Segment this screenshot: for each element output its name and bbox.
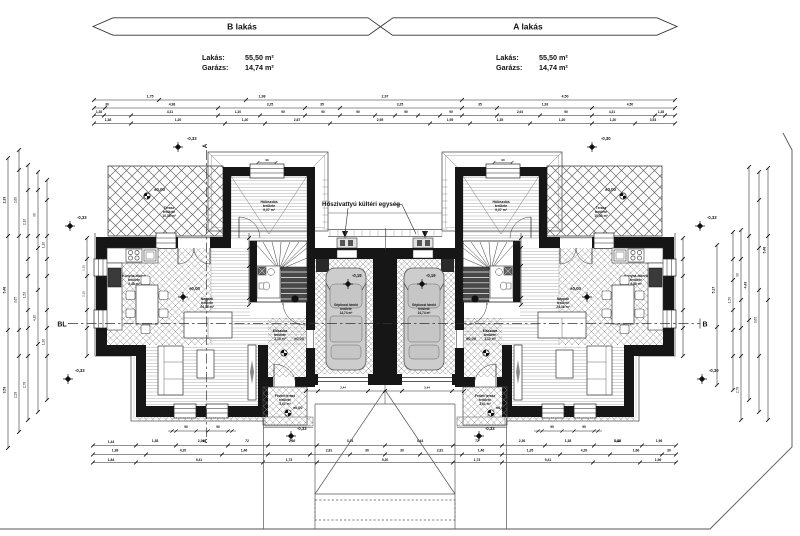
svg-text:5,17: 5,17 [712, 287, 716, 294]
svg-text:14,74 m²: 14,74 m² [340, 311, 353, 315]
svg-text:-0,30: -0,30 [709, 368, 719, 373]
svg-text:-0,33: -0,33 [297, 426, 307, 431]
svg-text:90: 90 [265, 158, 269, 162]
svg-text:5,41: 5,41 [545, 458, 552, 462]
svg-text:14,74 m²: 14,74 m² [539, 63, 568, 72]
svg-text:A: A [203, 438, 209, 443]
svg-text:1,35: 1,35 [497, 118, 504, 122]
svg-text:90: 90 [216, 425, 220, 429]
svg-text:1,38: 1,38 [658, 110, 664, 114]
svg-text:3,53: 3,53 [650, 118, 657, 122]
svg-text:2,33: 2,33 [3, 197, 7, 204]
svg-text:4,31: 4,31 [167, 110, 173, 114]
svg-text:4,20: 4,20 [180, 449, 187, 453]
svg-text:±0,00: ±0,00 [154, 187, 166, 192]
svg-text:1,98: 1,98 [259, 95, 266, 99]
svg-text:90: 90 [501, 158, 505, 162]
svg-text:BL: BL [57, 322, 67, 329]
svg-text:1,10: 1,10 [42, 242, 46, 248]
svg-text:90: 90 [281, 110, 285, 114]
svg-text:3,61 m²: 3,61 m² [279, 402, 291, 406]
svg-text:1,84: 1,84 [108, 458, 115, 462]
svg-text:24,36 m²: 24,36 m² [200, 305, 214, 309]
svg-text:1,10: 1,10 [82, 265, 86, 271]
svg-text:±0,00: ±0,00 [570, 286, 582, 291]
svg-text:1,20: 1,20 [235, 110, 241, 114]
svg-text:30: 30 [105, 103, 109, 107]
svg-text:4,98: 4,98 [169, 103, 176, 107]
svg-text:90: 90 [404, 110, 408, 114]
svg-text:B lakás: B lakás [227, 22, 257, 32]
svg-text:9,07 m²: 9,07 m² [263, 208, 276, 212]
svg-text:-0,19: -0,19 [426, 273, 436, 278]
svg-text:1,35: 1,35 [527, 449, 534, 453]
svg-text:2,95: 2,95 [377, 118, 384, 122]
svg-text:3,53: 3,53 [3, 387, 7, 394]
svg-text:±0,00: ±0,00 [496, 406, 505, 410]
svg-text:Garázs:: Garázs: [496, 63, 522, 72]
svg-text:1,75: 1,75 [147, 95, 154, 99]
svg-text:-0,19: -0,19 [352, 273, 362, 278]
svg-text:90: 90 [736, 273, 740, 277]
svg-text:-0,33: -0,33 [485, 426, 495, 431]
svg-text:B: B [702, 322, 707, 329]
svg-text:-0,33: -0,33 [75, 368, 85, 373]
svg-text:±0,00: ±0,00 [189, 286, 201, 291]
svg-text:3,44: 3,44 [424, 386, 430, 390]
svg-text:2,10: 2,10 [23, 219, 27, 225]
svg-text:1,20: 1,20 [559, 118, 566, 122]
svg-text:1,20: 1,20 [242, 118, 249, 122]
svg-text:±0,00: ±0,00 [293, 406, 302, 410]
svg-text:Lakás:: Lakás: [202, 53, 225, 62]
svg-text:5,48: 5,48 [763, 247, 767, 254]
svg-text:90: 90 [550, 425, 554, 429]
svg-text:1,46: 1,46 [241, 449, 248, 453]
svg-text:10,35 m²: 10,35 m² [594, 214, 608, 218]
svg-text:4,43: 4,43 [744, 282, 748, 289]
svg-text:1,96: 1,96 [655, 458, 662, 462]
svg-text:4,20: 4,20 [581, 449, 588, 453]
svg-text:1,50: 1,50 [728, 297, 732, 303]
svg-text:A lakás: A lakás [513, 22, 543, 32]
svg-text:A: A [203, 143, 209, 148]
svg-text:1,46: 1,46 [478, 449, 485, 453]
svg-text:2,36: 2,36 [519, 439, 526, 443]
svg-text:2,87: 2,87 [294, 118, 301, 122]
svg-text:90: 90 [356, 110, 360, 114]
svg-text:2,64: 2,64 [517, 110, 523, 114]
svg-text:2,66: 2,66 [289, 439, 296, 443]
svg-text:Garázs:: Garázs: [202, 63, 228, 72]
svg-text:1,95: 1,95 [447, 118, 454, 122]
svg-text:-0,30: -0,30 [601, 136, 611, 141]
svg-text:24,36 m²: 24,36 m² [556, 305, 570, 309]
svg-text:-0,33: -0,33 [77, 215, 87, 220]
svg-text:72: 72 [475, 439, 479, 443]
svg-text:1,30: 1,30 [42, 339, 46, 345]
svg-text:1,33: 1,33 [615, 439, 622, 443]
svg-text:2,60: 2,60 [14, 197, 18, 203]
svg-text:2,81: 2,81 [437, 449, 444, 453]
svg-text:1,38: 1,38 [565, 439, 572, 443]
svg-text:1,93: 1,93 [542, 103, 549, 107]
svg-text:2,81: 2,81 [326, 449, 333, 453]
svg-text:3,25: 3,25 [397, 103, 404, 107]
svg-text:Lakás:: Lakás: [496, 53, 519, 62]
svg-text:1,38: 1,38 [105, 118, 112, 122]
svg-text:90: 90 [321, 110, 325, 114]
svg-text:14,74 m²: 14,74 m² [418, 311, 431, 315]
svg-text:5,41: 5,41 [196, 458, 203, 462]
svg-text:1,38: 1,38 [96, 110, 102, 114]
svg-text:30: 30 [667, 449, 671, 453]
svg-text:55,50 m²: 55,50 m² [539, 53, 568, 62]
svg-text:2,10: 2,10 [82, 291, 86, 297]
svg-text:4,10: 4,10 [33, 315, 37, 321]
svg-text:1,20: 1,20 [610, 118, 617, 122]
svg-text:3,65: 3,65 [754, 317, 758, 323]
svg-text:-0,33: -0,33 [187, 136, 197, 141]
svg-text:2,78: 2,78 [23, 382, 27, 388]
svg-text:90: 90 [33, 213, 37, 217]
svg-text:4,50: 4,50 [562, 95, 569, 99]
svg-text:3,61 m²: 3,61 m² [479, 402, 491, 406]
svg-text:2,78: 2,78 [736, 387, 740, 393]
svg-text:2,28: 2,28 [14, 392, 18, 398]
svg-text:9,20: 9,20 [382, 458, 389, 462]
svg-text:3,10 m²: 3,10 m² [484, 337, 496, 341]
svg-text:3,10 m²: 3,10 m² [274, 337, 286, 341]
svg-text:1,73: 1,73 [286, 458, 293, 462]
svg-text:3,25: 3,25 [267, 103, 274, 107]
svg-text:1,44: 1,44 [108, 440, 115, 444]
svg-text:30: 30 [365, 449, 369, 453]
svg-text:Hőszivattyú kültéri egység: Hőszivattyú kültéri egység [322, 201, 400, 208]
svg-text:35: 35 [320, 103, 324, 107]
svg-text:4,50: 4,50 [627, 103, 634, 107]
svg-text:35: 35 [478, 103, 482, 107]
svg-text:1,66: 1,66 [633, 449, 640, 453]
svg-text:30: 30 [400, 449, 404, 453]
svg-text:1,50: 1,50 [23, 292, 27, 298]
svg-text:90: 90 [582, 425, 586, 429]
svg-text:1,38: 1,38 [112, 449, 119, 453]
svg-text:±0,00: ±0,00 [466, 336, 477, 341]
svg-text:90: 90 [564, 110, 568, 114]
svg-text:1,20: 1,20 [175, 118, 182, 122]
svg-text:±0,00: ±0,00 [605, 187, 617, 192]
svg-text:1,96: 1,96 [656, 439, 663, 443]
svg-text:3,44: 3,44 [340, 386, 346, 390]
svg-text:5,48: 5,48 [3, 287, 7, 294]
svg-text:1,73: 1,73 [474, 458, 481, 462]
svg-text:4,31: 4,31 [609, 110, 615, 114]
svg-text:9,07 m²: 9,07 m² [495, 208, 508, 212]
svg-text:1,38: 1,38 [152, 439, 159, 443]
svg-text:72: 72 [245, 439, 249, 443]
svg-text:3,65: 3,65 [14, 297, 18, 303]
svg-text:55,50 m²: 55,50 m² [245, 53, 274, 62]
svg-text:2,97: 2,97 [382, 95, 389, 99]
svg-text:10,35 m²: 10,35 m² [162, 214, 176, 218]
svg-text:90: 90 [184, 425, 188, 429]
svg-text:90: 90 [449, 110, 453, 114]
svg-text:14,74 m²: 14,74 m² [245, 63, 274, 72]
svg-text:-0,33: -0,33 [707, 215, 717, 220]
svg-text:±0,00: ±0,00 [294, 336, 305, 341]
